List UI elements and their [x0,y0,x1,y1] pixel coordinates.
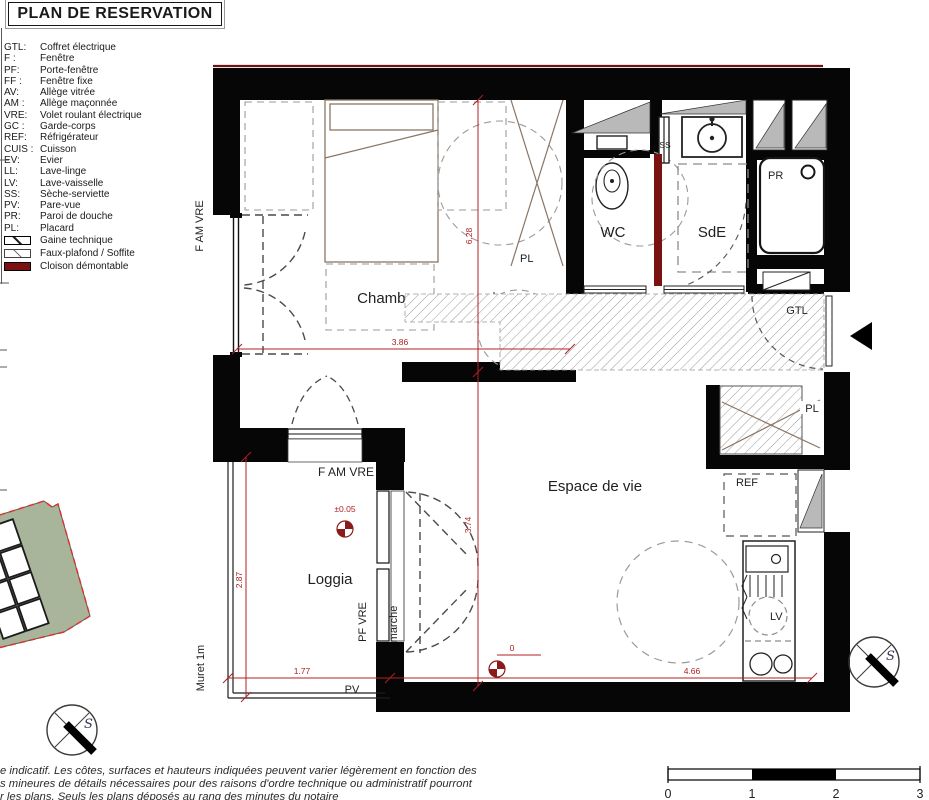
site-plan-thumbnail [0,501,90,650]
label-ref: REF [736,477,758,489]
scale-tick-0: 0 [665,787,672,800]
label-f-am-vre-loggia: F AM VRE [318,465,374,479]
room-label-wc: WC [601,224,626,241]
placard-chambre-icon [511,100,563,266]
label-gtl: GTL [786,305,807,317]
window-loggia [288,429,362,462]
label-pr: PR [768,170,783,182]
scale-tick-1: 1 [749,787,756,800]
room-label-loggia: Loggia [307,571,353,588]
window-chambre-left [230,213,242,357]
dim-3-74: 3.74 [463,516,473,533]
compass-south-label: S [84,717,93,732]
entry-door-leaf [826,296,832,366]
floor-plan-drawing: Chambre PL WC SS SdE [0,0,929,800]
dim-3-86: 3.86 [392,337,409,347]
cloison-demontable [654,154,662,286]
level-espace: 0 [510,643,515,653]
entry-arrow-icon [850,322,872,350]
label-pl-entree: PL [805,403,818,415]
label-pl-chambre: PL [520,253,533,265]
label-ss: SS [659,140,671,150]
scale-bar: 0 1 2 3 [665,766,924,800]
label-pv: PV [345,684,360,696]
room-label-sde: SdE [698,224,726,241]
kitchen-counter [742,541,795,681]
level-marker-icon [489,661,505,677]
label-pf-vre: PF VRE [357,602,369,642]
entry-hall-soffite: GTL [405,294,824,370]
floor-plan-page: PLAN DE RESERVATION GTL:Coffret électriq… [0,0,929,800]
dim-6-28: 6.28 [464,227,474,244]
turning-circle [617,541,739,663]
compass-south-label: S [886,649,895,664]
label-f-am-vre-left: F AM VRE [194,200,206,251]
room-label-espace: Espace de vie [548,478,642,495]
label-marche: marche [388,606,400,643]
north-compass-icon: S [849,637,899,687]
window-swing-dashes [242,215,308,354]
shower-pr: PR [760,158,824,290]
scale-tick-3: 3 [917,787,924,800]
dim-4-66: 4.66 [684,666,701,676]
north-compass-icon: S [47,705,97,755]
sde-soffite-triangle [660,100,746,114]
placard-entree: PL [720,386,824,454]
label-lv: LV [770,611,783,623]
level-loggia: ±0.05 [334,504,355,514]
label-muret: Muret 1m [195,645,207,691]
sde-room: SdE [678,116,748,288]
loggia-window-swing [292,376,358,424]
bed-icon [325,100,438,262]
loggia-room: Loggia [228,376,478,698]
dim-2-87: 2.87 [234,571,244,588]
disclaimer-line: s mineures de détails nécessaires pour d… [0,778,470,791]
disclaimer-line: e indicatif. Les côtes, surfaces et haut… [0,765,470,778]
porte-fenetre-swing [406,492,478,653]
door-thresholds [584,286,744,293]
level-marker-icon [337,521,353,537]
dim-1-77: 1.77 [294,666,311,676]
refrigerateur-zone: REF [724,474,796,536]
scale-tick-2: 2 [833,787,840,800]
disclaimer-line: r les plans. Seuls les plans déposés au … [0,791,470,800]
disclaimer-text: e indicatif. Les côtes, surfaces et haut… [0,765,470,800]
sheet-frame-remnants [0,28,9,490]
